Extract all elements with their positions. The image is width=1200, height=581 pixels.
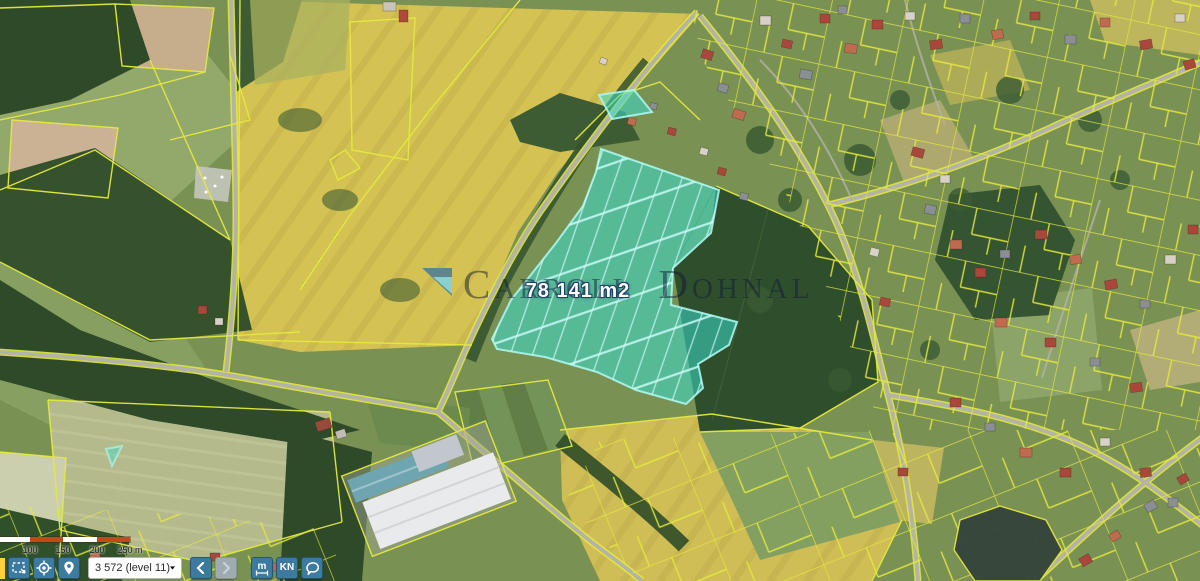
svg-text:m: m	[258, 561, 267, 572]
lasso-icon	[304, 560, 321, 577]
panel-edge-tab[interactable]	[0, 558, 5, 579]
marker-button[interactable]	[58, 557, 80, 579]
measure-icon: m	[253, 559, 271, 577]
zoom-level-select[interactable]: 3 572 (level 11)	[88, 557, 182, 579]
history-back-button[interactable]	[190, 557, 212, 579]
kn-button-label: KN	[280, 563, 294, 573]
kn-button[interactable]: KN	[276, 557, 298, 579]
chevron-right-icon	[220, 562, 232, 574]
chevron-left-icon	[195, 562, 207, 574]
dashed-rectangle-icon	[11, 560, 27, 576]
crosshair-icon	[36, 560, 52, 576]
bottom-toolbar: 3 572 (level 11) m KN	[8, 557, 323, 579]
map-pin-icon	[61, 560, 77, 576]
select-area-button[interactable]	[8, 557, 30, 579]
chevron-down-icon	[170, 565, 175, 571]
zoom-level-value: 3 572 (level 11)	[95, 562, 170, 574]
measure-button[interactable]: m	[251, 557, 273, 579]
lasso-button[interactable]	[301, 557, 323, 579]
map-canvas[interactable]	[0, 0, 1200, 581]
locate-button[interactable]	[33, 557, 55, 579]
history-forward-button[interactable]	[215, 557, 237, 579]
map-viewport: CarrollDohnal 78 141 m2 100 150 200 250 …	[0, 0, 1200, 581]
